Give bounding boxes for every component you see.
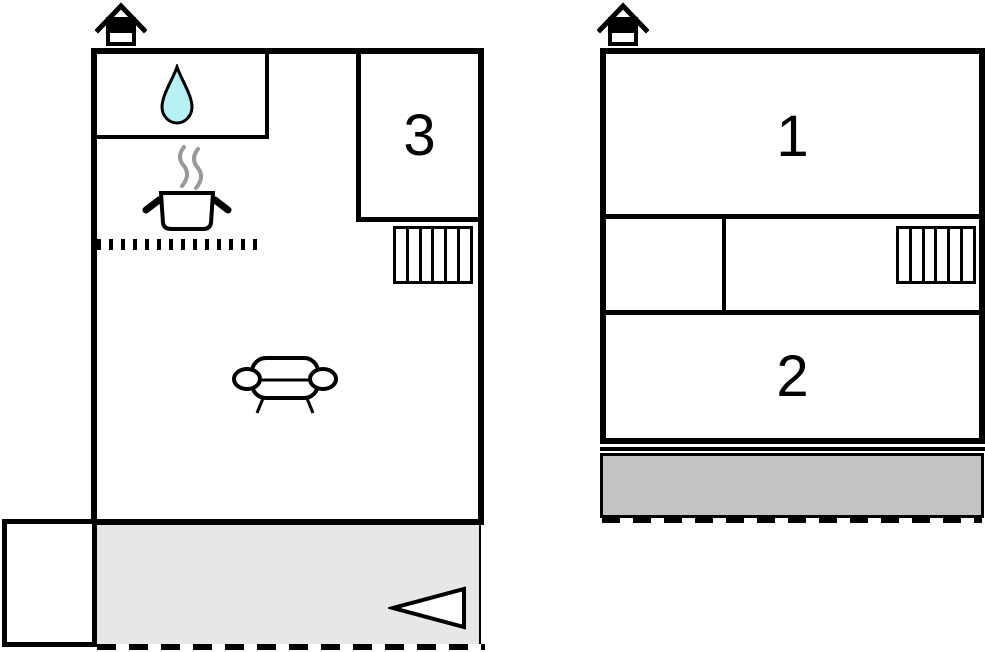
arrow-left-icon bbox=[388, 584, 468, 632]
room-1-label: 1 bbox=[606, 54, 979, 220]
terrace-dashed-edge bbox=[97, 644, 485, 650]
corridor-divider-wall bbox=[722, 219, 726, 315]
balcony-dashed-edge bbox=[602, 518, 982, 523]
floor-plan-canvas: 3 bbox=[0, 0, 985, 652]
room-3-bottom-wall bbox=[356, 217, 478, 222]
house-icon bbox=[597, 2, 649, 46]
house-icon bbox=[95, 2, 147, 46]
water-drop-icon bbox=[159, 64, 195, 126]
ground-floor-plan: 3 bbox=[0, 0, 500, 652]
room-1-bottom-wall bbox=[600, 214, 985, 219]
cooking-pot-icon bbox=[140, 143, 235, 233]
annex-box bbox=[2, 519, 97, 647]
kitchen-divider-dotted-line bbox=[97, 239, 265, 250]
balcony-separator-line bbox=[600, 447, 985, 451]
room-2-label: 2 bbox=[606, 315, 979, 438]
sofa-icon bbox=[230, 350, 340, 416]
room-3-label: 3 bbox=[361, 54, 478, 217]
balcony-area bbox=[600, 453, 984, 518]
upper-floor-plan: 1 2 bbox=[500, 0, 985, 652]
stairs-icon-ground-floor bbox=[393, 226, 473, 284]
stairs-icon-upper-floor bbox=[896, 226, 976, 284]
